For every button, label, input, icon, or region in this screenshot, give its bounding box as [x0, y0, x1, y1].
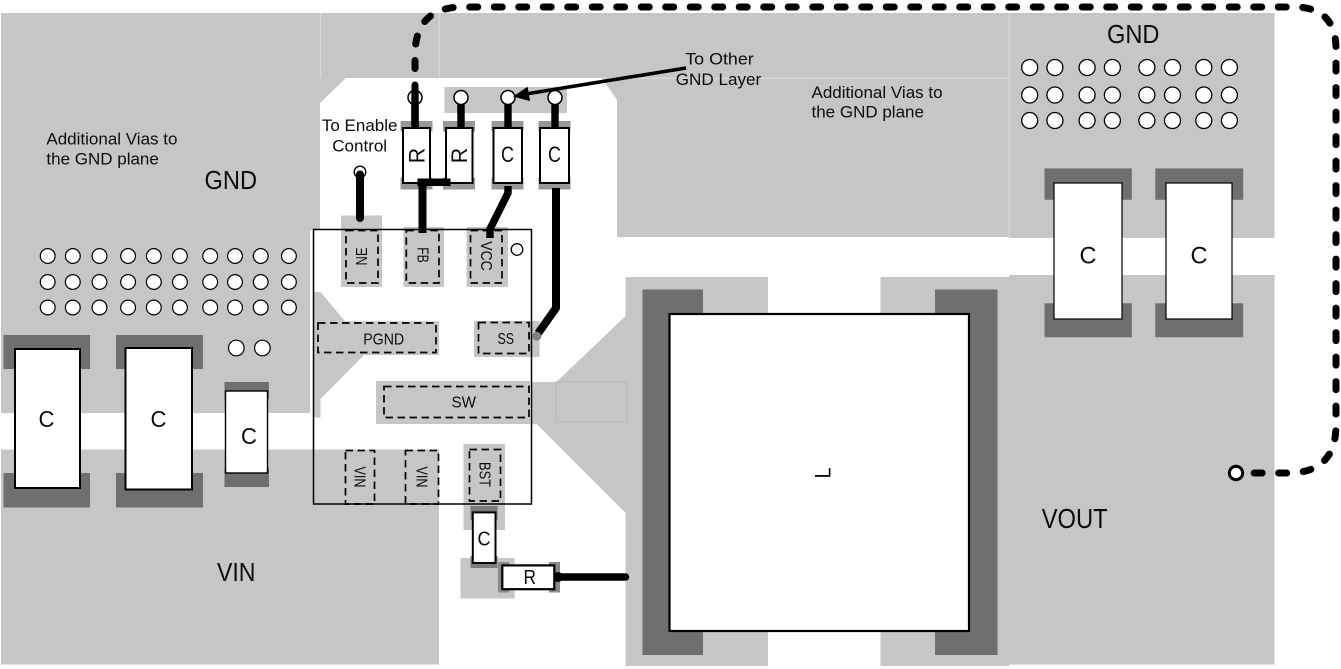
- svg-text:C: C: [548, 142, 561, 167]
- svg-text:GND Layer: GND Layer: [676, 70, 762, 89]
- svg-text:the GND plane: the GND plane: [812, 103, 924, 122]
- svg-text:To Enable: To Enable: [322, 116, 398, 135]
- svg-text:R: R: [447, 148, 472, 164]
- svg-text:GND: GND: [1107, 21, 1160, 49]
- svg-text:C: C: [39, 406, 55, 432]
- svg-text:PGND: PGND: [363, 332, 404, 349]
- svg-text:C: C: [478, 529, 491, 551]
- svg-text:SS: SS: [498, 331, 515, 348]
- svg-text:the GND plane: the GND plane: [46, 150, 158, 169]
- svg-text:Additional Vias to: Additional Vias to: [812, 83, 943, 102]
- svg-text:BST: BST: [476, 462, 493, 487]
- svg-text:VOUT: VOUT: [1042, 503, 1108, 534]
- svg-text:Additional Vias to: Additional Vias to: [46, 130, 177, 149]
- svg-text:C: C: [501, 142, 514, 167]
- svg-text:VIN: VIN: [217, 559, 256, 587]
- svg-text:GND: GND: [205, 167, 258, 195]
- svg-text:R: R: [405, 148, 430, 164]
- svg-text:L: L: [811, 468, 836, 479]
- svg-text:Control: Control: [332, 137, 387, 156]
- svg-text:C: C: [151, 406, 167, 432]
- svg-text:VIN: VIN: [351, 467, 368, 488]
- svg-text:R: R: [523, 567, 536, 589]
- svg-text:FB: FB: [413, 247, 430, 263]
- svg-text:To Other: To Other: [685, 50, 754, 69]
- svg-text:C: C: [1080, 243, 1097, 270]
- svg-text:NE: NE: [354, 248, 371, 266]
- svg-text:VCC: VCC: [477, 241, 494, 271]
- svg-text:C: C: [1191, 243, 1208, 270]
- svg-text:VIN: VIN: [413, 467, 430, 488]
- svg-text:SW: SW: [451, 395, 476, 412]
- svg-text:C: C: [241, 423, 257, 449]
